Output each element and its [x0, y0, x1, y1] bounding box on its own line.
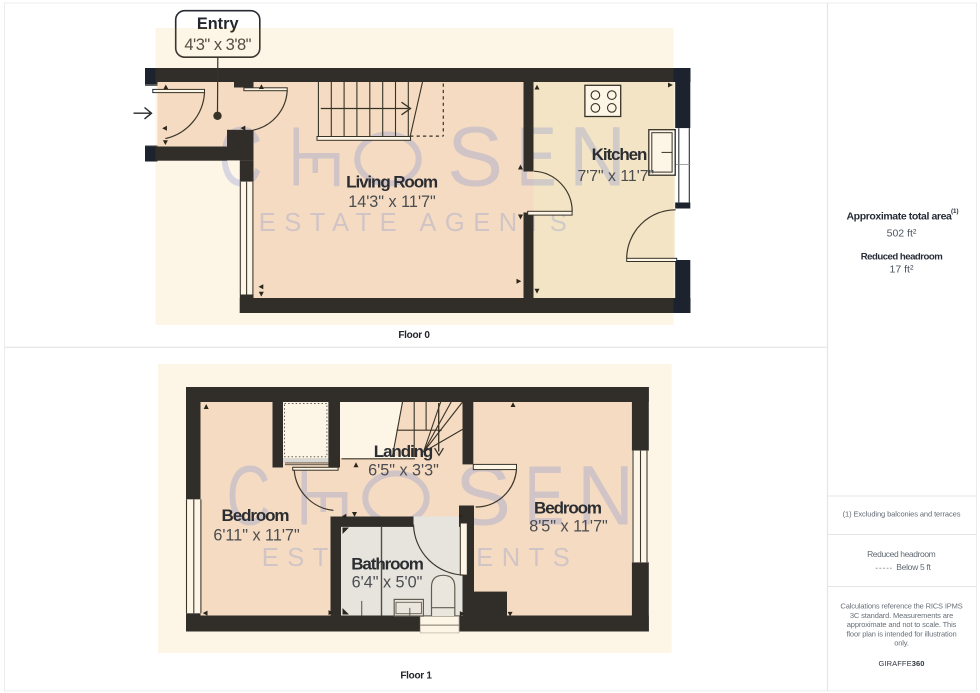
svg-text:6'11" x 11'7": 6'11" x 11'7" [213, 527, 300, 545]
svg-text:17 ft²: 17 ft² [890, 264, 914, 276]
svg-text:Floor 1: Floor 1 [400, 671, 432, 682]
svg-text:Landing: Landing [374, 442, 433, 461]
svg-text:Bedroom: Bedroom [534, 498, 602, 517]
svg-text:Calculations reference the RIC: Calculations reference the RICS IPMS [840, 602, 962, 611]
svg-text:502 ft²: 502 ft² [887, 228, 917, 240]
svg-text:only.: only. [894, 639, 909, 648]
svg-text:floor plan is intended for ill: floor plan is intended for illustration [846, 629, 956, 638]
svg-text:(1) Excluding balconies and te: (1) Excluding balconies and terraces [843, 510, 961, 519]
svg-text:7'7" x 11'7": 7'7" x 11'7" [577, 168, 654, 185]
svg-text:Approximate total area: Approximate total area [847, 211, 953, 223]
svg-text:Kitchen: Kitchen [592, 145, 647, 164]
svg-text:approximate and not to scale.: approximate and not to scale. This [847, 620, 957, 629]
svg-text:8'5" x 11'7": 8'5" x 11'7" [529, 518, 608, 536]
svg-text:6'4" x 5'0": 6'4" x 5'0" [352, 574, 423, 592]
svg-text:(1): (1) [951, 208, 959, 215]
svg-text:Bathroom: Bathroom [351, 554, 423, 573]
svg-text:6'5" x 3'3": 6'5" x 3'3" [368, 462, 439, 480]
svg-text:Bedroom: Bedroom [222, 506, 290, 525]
svg-text:GIRAFFE360: GIRAFFE360 [878, 659, 924, 668]
svg-text:Floor 0: Floor 0 [398, 330, 430, 341]
svg-text:14'3" x 11'7": 14'3" x 11'7" [348, 193, 436, 211]
svg-text:Reduced headroom: Reduced headroom [861, 251, 943, 262]
svg-text:Reduced headroom: Reduced headroom [867, 549, 936, 559]
svg-text:Below 5 ft: Below 5 ft [896, 562, 931, 572]
svg-text:3C standard. Measurements are: 3C standard. Measurements are [850, 611, 953, 620]
svg-text:Living Room: Living Room [346, 172, 438, 191]
